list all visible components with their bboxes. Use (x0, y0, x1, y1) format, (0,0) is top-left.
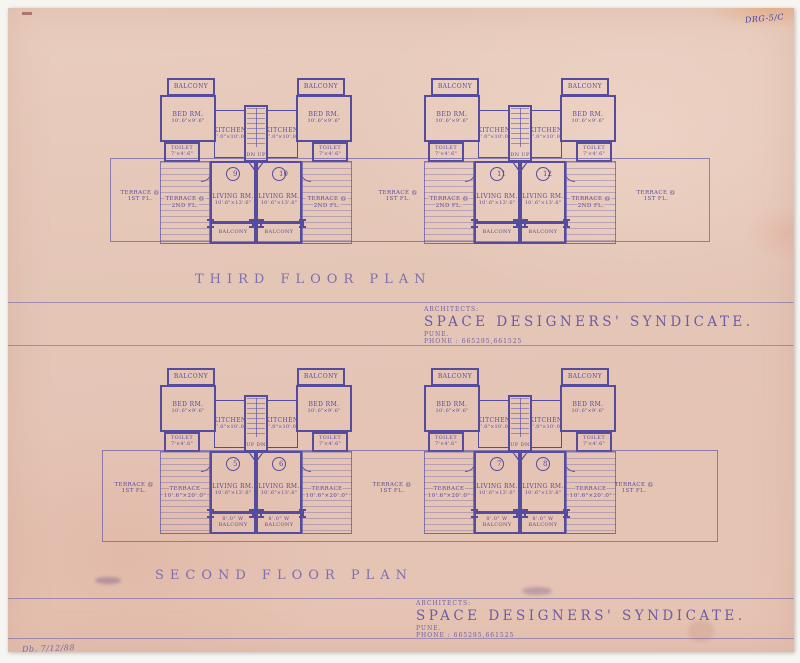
rule-line (8, 345, 794, 346)
room-dimension: 10'.6"×13'.6" (215, 201, 251, 207)
room-dimension: 7'×4'.6" (319, 442, 341, 448)
second-floor-plan-drawing: TERRACE @ 1ST FL. TERRACE @ 1ST FL. TERR… (102, 362, 718, 562)
balcony-top-right: BALCONY (297, 368, 345, 386)
architect-firm-name: SPACE DESIGNERS' SYNDICATE. (424, 314, 764, 330)
column-marker (249, 509, 256, 518)
building-units-9-10: BALCONY BALCONY BED RM. 10'.6"×9'.6" BED… (160, 78, 352, 244)
terrace-hatched-right: TERRACE 10'.6"×20'.0" (566, 451, 616, 534)
balcony-label: BALCONY (174, 374, 208, 381)
column-marker (471, 219, 478, 228)
room-dimension: 10'.6"×9'.6" (571, 409, 604, 415)
living-room-right: LIVING RM. 10'.6"×13'.6" (520, 451, 566, 513)
architect-phone: PHONE : 665295,661525 (424, 338, 764, 345)
column-marker (521, 219, 528, 228)
balcony-label: BALCONY (438, 374, 472, 381)
toilet-left: TOILET 7'×4'.6" (428, 142, 464, 162)
balcony-label: BALCONY (568, 84, 602, 91)
room-dimension: 10'.6"×13'.6" (215, 491, 251, 497)
rule-line (8, 302, 794, 303)
room-dimension: 10'.6"×13'.6" (479, 201, 515, 207)
toilet-right: TOILET 7'×4'.6" (576, 142, 612, 162)
room-dimension: 10'.6"×9'.6" (571, 119, 604, 125)
balcony-label: BALCONY (438, 84, 472, 91)
balcony-label: BALCONY (304, 84, 338, 91)
bedroom-right: BED RM. 10'.6"×9'.6" (560, 385, 616, 432)
terrace-hatched-right: TERRACE @ 2ND FL. (302, 161, 352, 244)
room-dimension: 7'.0"×10'.0" (529, 425, 562, 431)
room-dimension: 10'.6"×13'.6" (261, 201, 297, 207)
bedroom-left: BED RM. 10'.6"×9'.6" (160, 95, 216, 142)
living-room-left: LIVING RM. 10'.6"×13'.6" (474, 161, 520, 223)
drawing-number-annotation: DRG-5/C (745, 12, 785, 24)
living-room-right: LIVING RM. 10'.6"×13'.6" (520, 161, 566, 223)
room-dimension: 10'.6"×9'.6" (171, 119, 204, 125)
toilet-right: TOILET 7'×4'.6" (312, 432, 348, 452)
room-dimension: 7'.0"×10'.0" (265, 425, 298, 431)
room-dimension: 7'×4'.6" (583, 152, 605, 158)
living-room-right: LIVING RM. 10'.6"×13'.6" (256, 451, 302, 513)
terrace-hatched-left: TERRACE @ 2ND FL. (160, 161, 210, 244)
balcony-top-left: BALCONY (167, 368, 215, 386)
architect-title-block: ARCHITECTS: SPACE DESIGNERS' SYNDICATE. … (424, 306, 764, 345)
corner-mark (22, 12, 32, 15)
room-dimension: 7'×4'.6" (171, 152, 193, 158)
room-dimension: 7'.0"×10'.0" (213, 135, 246, 141)
column-marker (563, 219, 570, 228)
stair-direction-label: DN UP (234, 153, 278, 159)
bedroom-right: BED RM. 10'.6"×9'.6" (296, 95, 352, 142)
balcony-top-right: BALCONY (561, 368, 609, 386)
room-dimension: 10'.6"×13'.6" (479, 491, 515, 497)
terrace-label-left: TERRACE @ 1ST FL. (116, 190, 164, 203)
column-marker (563, 509, 570, 518)
bedroom-left: BED RM. 10'.6"×9'.6" (424, 95, 480, 142)
column-marker (513, 219, 520, 228)
room-dimension: 10'.6"×9'.6" (307, 409, 340, 415)
room-dimension: 7'.0"×10'.0" (213, 425, 246, 431)
living-room-left: LIVING RM. 10'.6"×13'.6" (210, 161, 256, 223)
ink-smudge (522, 587, 552, 595)
kitchen-left: KITCHEN 7'.0"×10'.0" (478, 110, 510, 158)
column-marker (471, 509, 478, 518)
kitchen-right: KITCHEN 7'.0"×10'.0" (530, 110, 562, 158)
toilet-left: TOILET 7'×4'.6" (428, 432, 464, 452)
terrace-label-middle: TERRACE @ 1ST FL. (364, 482, 420, 495)
stair-direction-label: DN UP (498, 153, 542, 159)
terrace-label-middle: TERRACE @ 1ST FL. (370, 190, 426, 203)
column-marker (257, 219, 264, 228)
room-dimension: 7'.0"×10'.0" (265, 135, 298, 141)
room-dimension: 7'×4'.6" (435, 442, 457, 448)
balcony-top-left: BALCONY (431, 368, 479, 386)
toilet-right: TOILET 7'×4'.6" (576, 432, 612, 452)
kitchen-right: KITCHEN 7'.0"×10'.0" (266, 110, 298, 158)
room-dimension: 10'.6"×13'.6" (525, 201, 561, 207)
kitchen-left: KITCHEN 7'.0"×10'.0" (214, 110, 246, 158)
room-dimension: 7'.0"×10'.0" (477, 425, 510, 431)
toilet-left: TOILET 7'×4'.6" (164, 142, 200, 162)
bedroom-left: BED RM. 10'.6"×9'.6" (424, 385, 480, 432)
column-marker (299, 509, 306, 518)
architect-city: PUNE. (424, 331, 764, 338)
column-marker (521, 509, 528, 518)
living-room-left: LIVING RM. 10'.6"×13'.6" (210, 451, 256, 513)
kitchen-left: KITCHEN 7'.0"×10'.0" (478, 400, 510, 448)
blueprint-sheet: DRG-5/C TERRACE @ 1ST FL. TERRACE @ 1ST … (8, 8, 794, 652)
terrace-hatched-left: TERRACE @ 2ND FL. (424, 161, 474, 244)
rule-line (8, 638, 794, 639)
building-units-11-12: BALCONY BALCONY BED RM. 10'.6"×9'.6" BED… (424, 78, 616, 244)
terrace-hatched-left: TERRACE 10'.6"×20'.0" (424, 451, 474, 534)
kitchen-right: KITCHEN 7'.0"×10'.0" (266, 400, 298, 448)
column-marker (207, 509, 214, 518)
kitchen-left: KITCHEN 7'.0"×10'.0" (214, 400, 246, 448)
balcony-top-left: BALCONY (431, 78, 479, 96)
room-dimension: 7'×4'.6" (171, 442, 193, 448)
balcony-label: BALCONY (568, 374, 602, 381)
terrace-hatched-left: TERRACE 10'.6"×20'.0" (160, 451, 210, 534)
room-dimension: 10'.6"×9'.6" (435, 119, 468, 125)
toilet-left: TOILET 7'×4'.6" (164, 432, 200, 452)
living-room-left: LIVING RM. 10'.6"×13'.6" (474, 451, 520, 513)
room-dimension: 7'.0"×10'.0" (529, 135, 562, 141)
column-marker (207, 219, 214, 228)
column-marker (513, 509, 520, 518)
room-dimension: 10'.6"×13'.6" (261, 491, 297, 497)
building-units-7-8: BALCONY BALCONY BED RM. 10'.6"×9'.6" BED… (424, 368, 616, 534)
column-marker (249, 219, 256, 228)
stair-direction-label: UP DN (234, 443, 278, 449)
bedroom-right: BED RM. 10'.6"×9'.6" (560, 95, 616, 142)
room-dimension: 7'.0"×10'.0" (477, 135, 510, 141)
ink-smudge (95, 577, 121, 584)
balcony-label: BALCONY (304, 374, 338, 381)
room-dimension: 7'×4'.6" (435, 152, 457, 158)
room-dimension: 10'.6"×9'.6" (435, 409, 468, 415)
bedroom-right: BED RM. 10'.6"×9'.6" (296, 385, 352, 432)
room-dimension: 10'.6"×13'.6" (525, 491, 561, 497)
toilet-right: TOILET 7'×4'.6" (312, 142, 348, 162)
building-units-5-6: BALCONY BALCONY BED RM. 10'.6"×9'.6" BED… (160, 368, 352, 534)
column-marker (299, 219, 306, 228)
architects-label: ARCHITECTS: (416, 600, 756, 607)
room-dimension: 10'.6"×9'.6" (171, 409, 204, 415)
living-room-right: LIVING RM. 10'.6"×13'.6" (256, 161, 302, 223)
room-dimension: 7'×4'.6" (319, 152, 341, 158)
stain (688, 620, 714, 642)
terrace-hatched-right: TERRACE @ 2ND FL. (566, 161, 616, 244)
column-marker (257, 509, 264, 518)
terrace-hatched-right: TERRACE 10'.6"×20'.0" (302, 451, 352, 534)
signature-date-annotation: Db. 7/12/88 (22, 643, 75, 654)
third-floor-plan-title: THIRD FLOOR PLAN (195, 272, 432, 287)
second-floor-plan-title: SECOND FLOOR PLAN (155, 568, 413, 583)
balcony-top-left: BALCONY (167, 78, 215, 96)
terrace-label-right: TERRACE @ 1ST FL. (624, 190, 688, 203)
bedroom-left: BED RM. 10'.6"×9'.6" (160, 385, 216, 432)
room-dimension: 7'×4'.6" (583, 442, 605, 448)
third-floor-plan-drawing: TERRACE @ 1ST FL. TERRACE @ 1ST FL. TERR… (110, 72, 710, 272)
balcony-label: BALCONY (174, 84, 208, 91)
rule-line (8, 598, 794, 599)
stair-direction-label: UP DN (498, 443, 542, 449)
kitchen-right: KITCHEN 7'.0"×10'.0" (530, 400, 562, 448)
balcony-top-right: BALCONY (297, 78, 345, 96)
balcony-top-right: BALCONY (561, 78, 609, 96)
room-dimension: 10'.6"×9'.6" (307, 119, 340, 125)
terrace-label-left: TERRACE @ 1ST FL. (110, 482, 158, 495)
architects-label: ARCHITECTS: (424, 306, 764, 313)
